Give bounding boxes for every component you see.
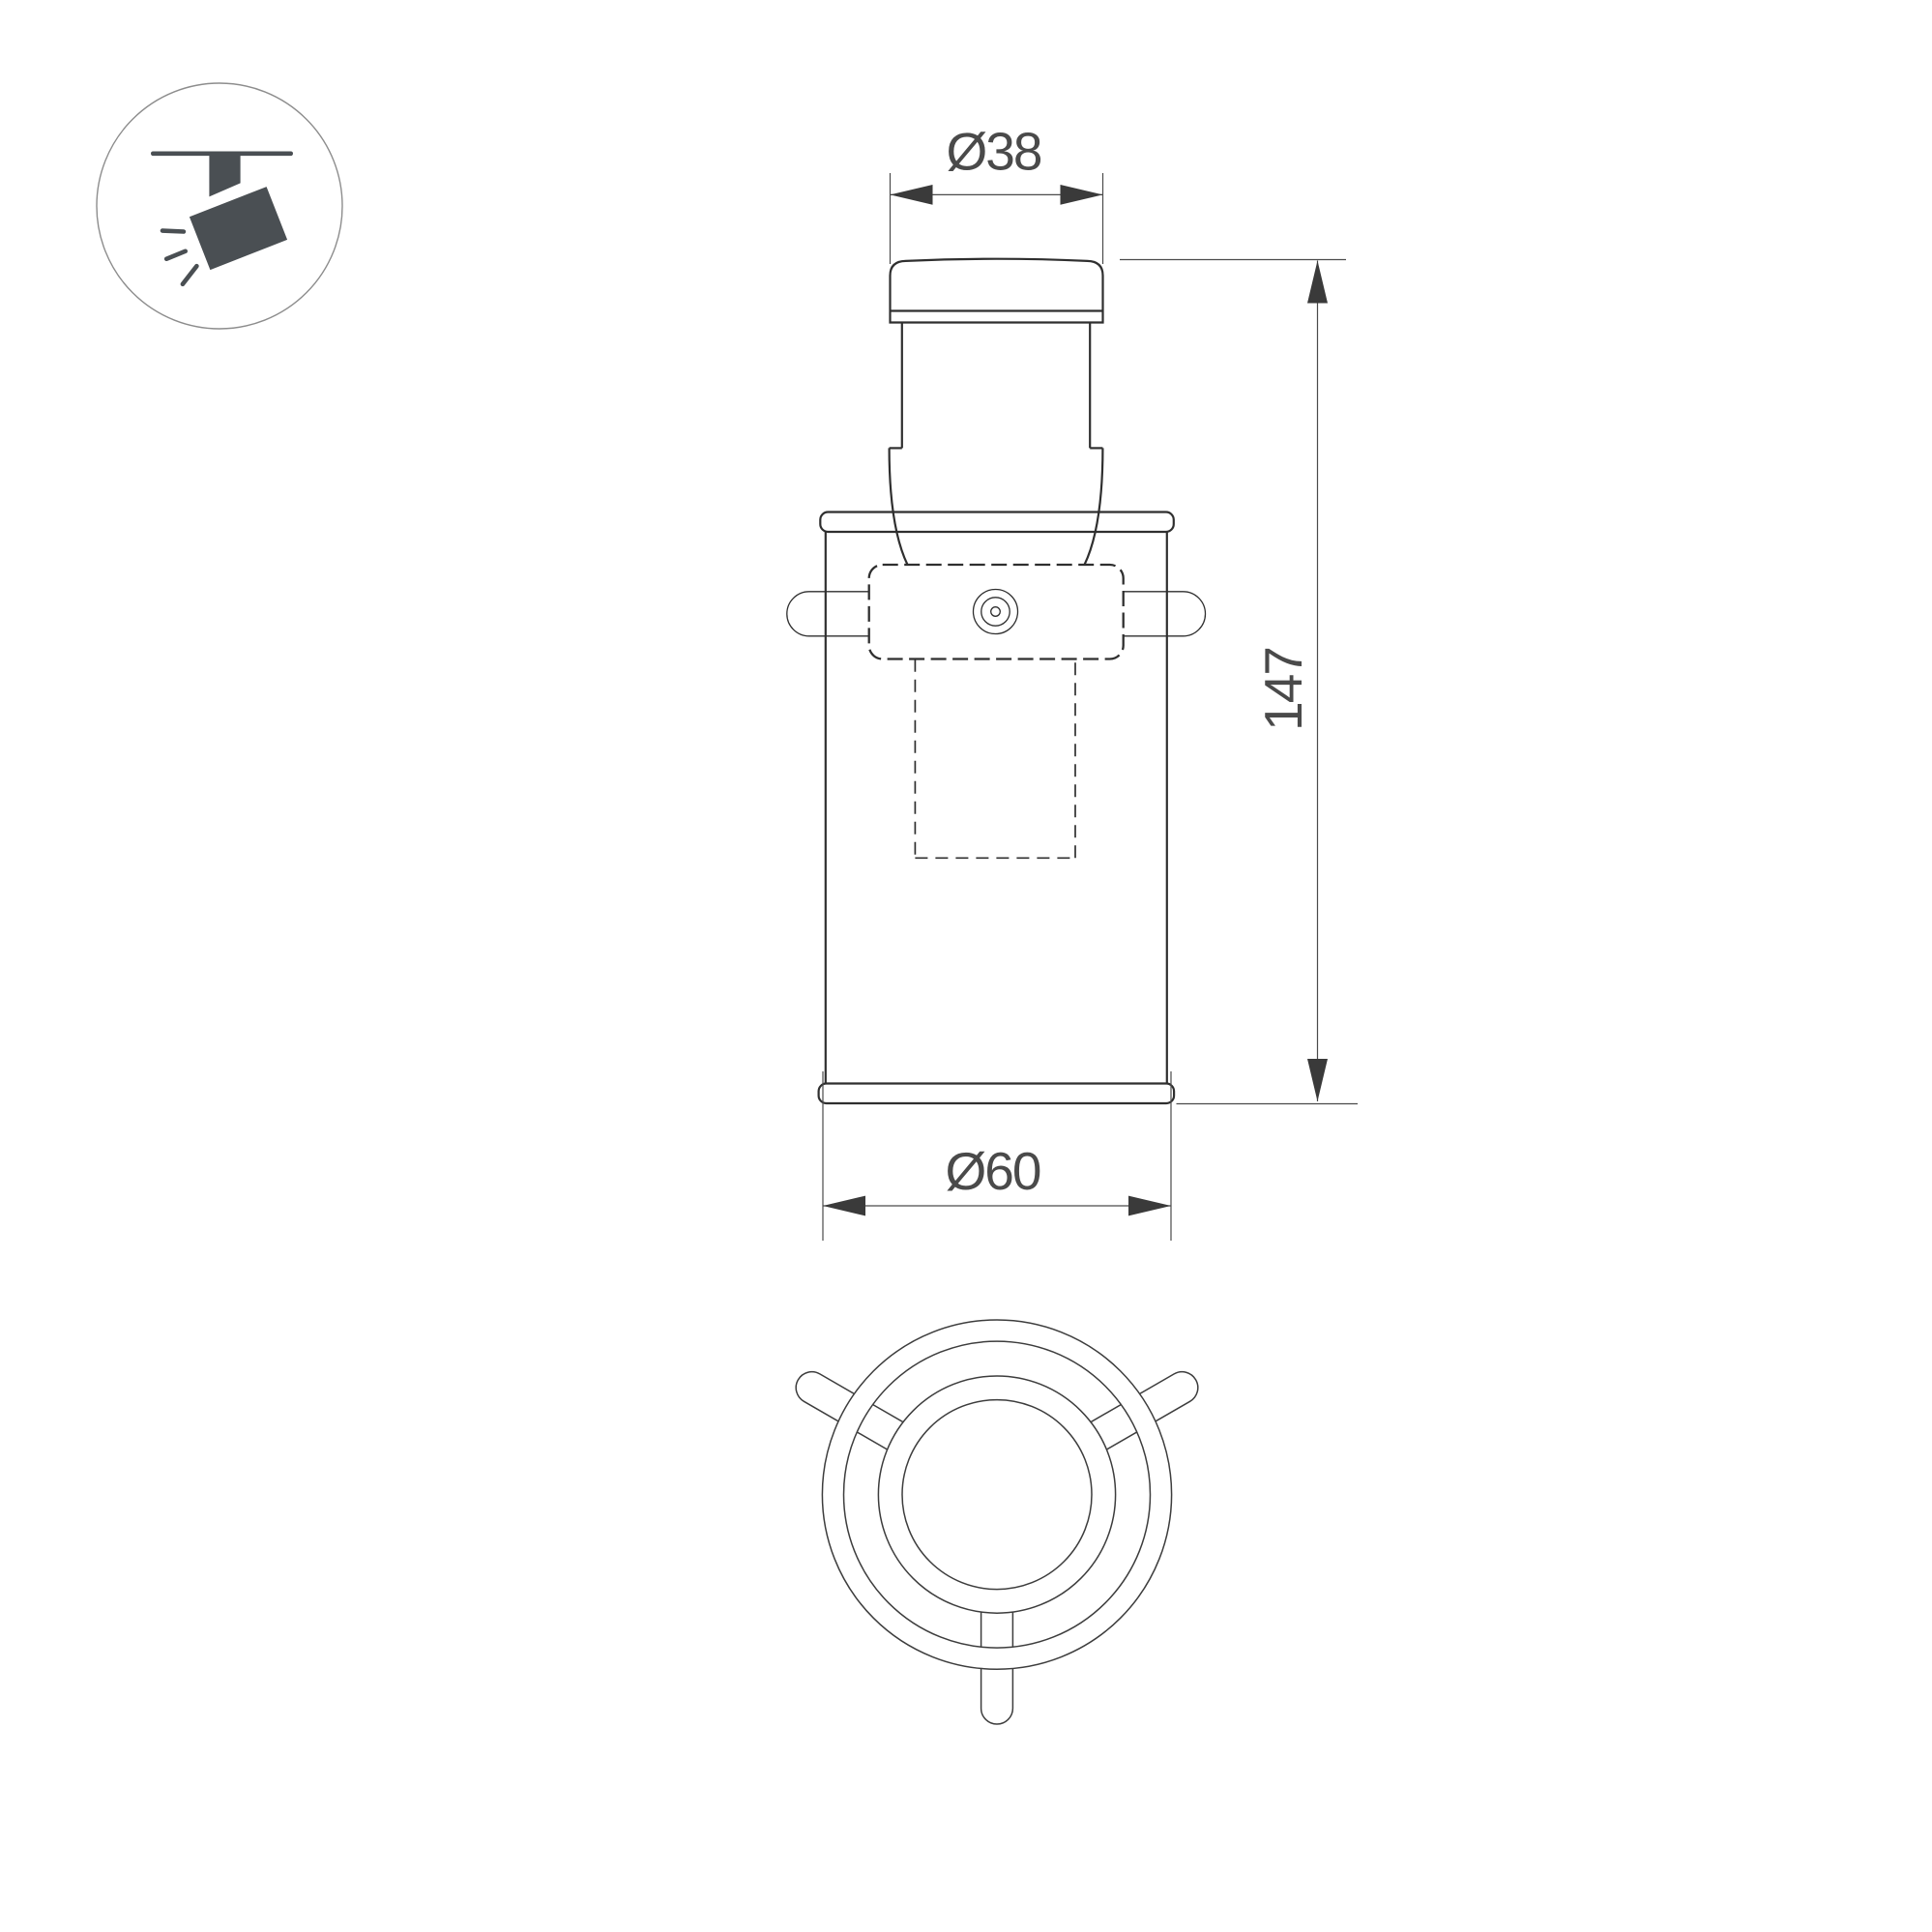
svg-text:147: 147 bbox=[1253, 648, 1313, 731]
svg-text:Ø60: Ø60 bbox=[946, 1141, 1040, 1201]
svg-text:Ø38: Ø38 bbox=[947, 122, 1041, 182]
